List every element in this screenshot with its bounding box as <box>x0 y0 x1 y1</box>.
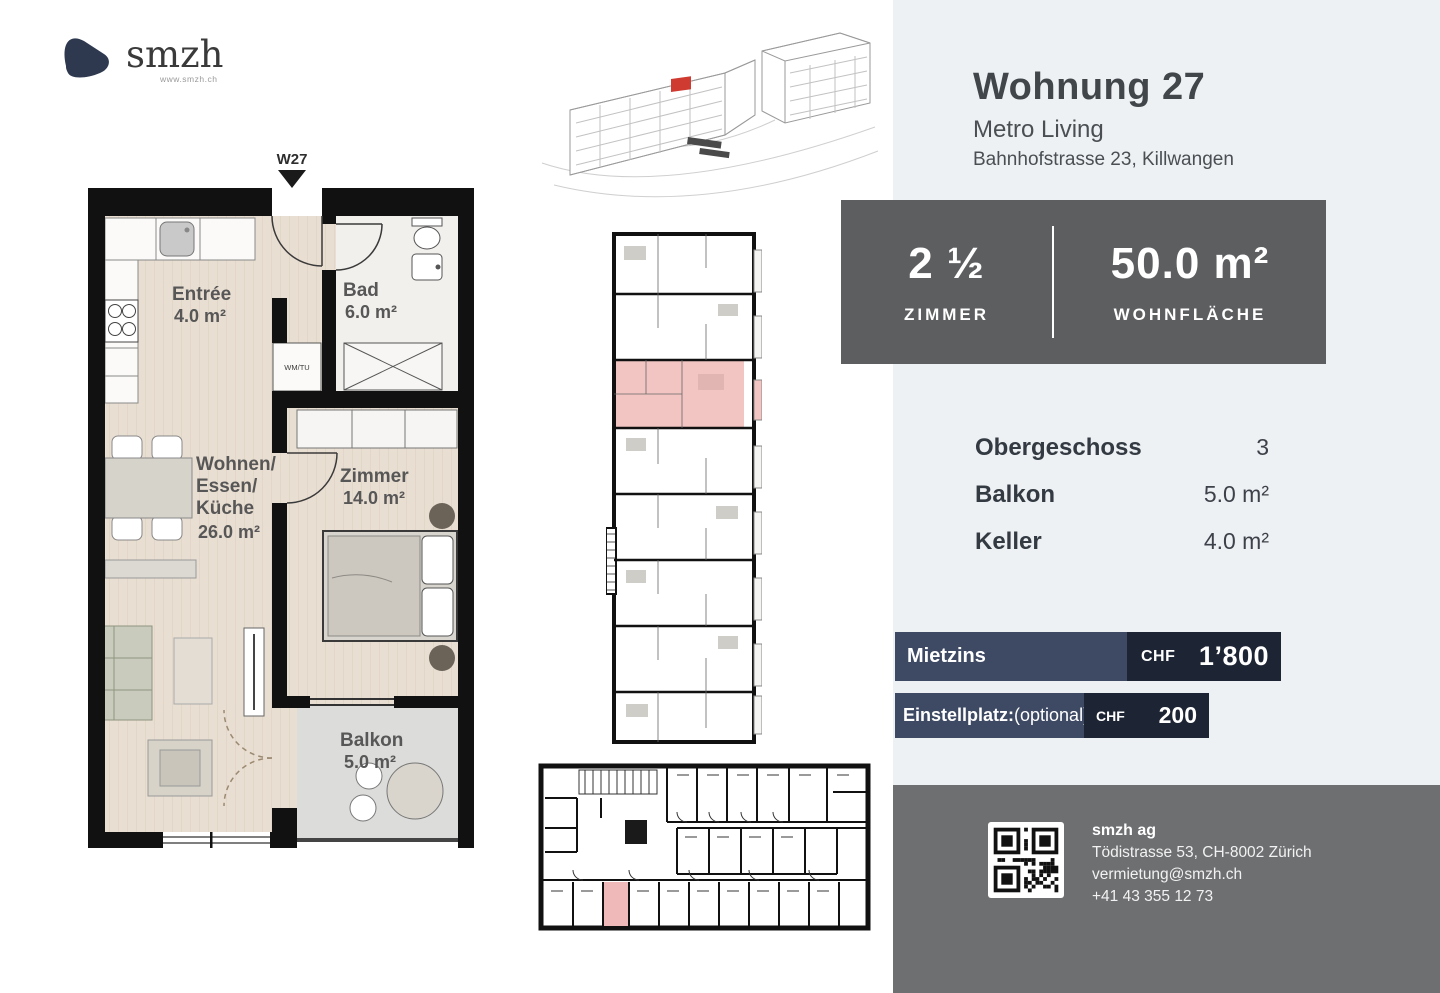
contact-block: smzh ag Tödistrasse 53, CH-8002 Zürich v… <box>1092 820 1312 908</box>
elevator-shaft <box>625 820 647 844</box>
bathroom-sink <box>412 254 442 280</box>
detail-row-cellar: Keller 4.0 m² <box>975 528 1269 556</box>
svg-text:14.0 m²: 14.0 m² <box>343 488 405 508</box>
apartment-factsheet: smzh www.smzh.ch <box>0 0 1440 993</box>
svg-text:Küche: Küche <box>196 498 254 519</box>
unit-marker: W27 <box>277 151 308 188</box>
rooms-value: 2 ½ <box>908 239 984 289</box>
detail-label: Keller <box>975 528 1042 556</box>
windows <box>163 832 270 848</box>
stove <box>105 300 138 342</box>
kitchen-sink <box>160 222 194 256</box>
parking-sketch <box>687 137 730 158</box>
area-label: WOHNFLÄCHE <box>1114 305 1267 325</box>
keyfact-rooms: 2 ½ ZIMMER <box>841 200 1052 364</box>
rent-currency: CHF <box>1141 648 1175 666</box>
building-right <box>762 33 870 123</box>
svg-text:Wohnen/: Wohnen/ <box>196 454 277 475</box>
detail-value: 3 <box>1256 434 1269 461</box>
basement-plan <box>537 762 872 932</box>
svg-text:6.0 m²: 6.0 m² <box>345 302 397 322</box>
site-overview-sketch <box>540 15 880 205</box>
washer-closet: WM/TU <box>273 343 321 391</box>
rooms-label: ZIMMER <box>904 305 989 325</box>
shower <box>344 343 442 390</box>
detail-row-balcony: Balkon 5.0 m² <box>975 481 1269 509</box>
highlighted-cellar <box>603 882 629 926</box>
tv-sideboard <box>244 628 264 716</box>
svg-text:5.0 m²: 5.0 m² <box>344 752 396 772</box>
logo-mark-icon <box>58 30 116 86</box>
rent-bar: Mietzins CHF 1’800 <box>895 632 1281 681</box>
bed <box>323 531 457 641</box>
logo-brand: smzh <box>126 36 223 73</box>
contact-phone: +41 43 355 12 73 <box>1092 886 1312 908</box>
detail-label: Balkon <box>975 481 1055 509</box>
page-title: Wohnung 27 <box>973 66 1413 109</box>
area-value: 50.0 m² <box>1111 239 1270 289</box>
detail-row-floor: Obergeschoss 3 <box>975 434 1269 462</box>
detail-list: Obergeschoss 3 Balkon 5.0 m² Keller 4.0 … <box>975 434 1269 575</box>
parking-label: Einstellplatz:(optional) <box>895 693 1084 738</box>
floor-overview-plan <box>606 228 762 748</box>
basement-stairs <box>579 770 657 794</box>
svg-text:Balkon: Balkon <box>340 730 403 751</box>
plant-stool <box>429 645 455 671</box>
parking-label-suffix: (optional) <box>1014 705 1089 726</box>
detail-value: 4.0 m² <box>1204 528 1269 555</box>
logo-website: www.smzh.ch <box>160 74 223 84</box>
entrance-arrow-icon <box>278 170 306 188</box>
project-address: Bahnhofstrasse 23, Killwangen <box>973 149 1413 171</box>
detail-label: Obergeschoss <box>975 434 1142 462</box>
project-name: Metro Living <box>973 116 1413 144</box>
logo: smzh www.smzh.ch <box>58 30 278 90</box>
svg-text:W27: W27 <box>277 151 308 168</box>
svg-text:26.0 m²: 26.0 m² <box>198 522 260 542</box>
apartment-floorplan: WM/TU <box>60 148 500 868</box>
keyfact-area: 50.0 m² WOHNFLÄCHE <box>1054 200 1326 364</box>
sideboard <box>105 560 196 578</box>
parking-amount: 200 <box>1159 702 1197 729</box>
coffee-table <box>174 638 212 704</box>
parking-bar: Einstellplatz:(optional) CHF 200 <box>895 693 1209 738</box>
unit-header: Wohnung 27 Metro Living Bahnhofstrasse 2… <box>973 66 1413 171</box>
svg-text:WM/TU: WM/TU <box>284 363 309 372</box>
svg-text:Zimmer: Zimmer <box>340 466 409 487</box>
qr-code <box>988 822 1064 898</box>
balcony-railing <box>297 838 458 842</box>
contact-company: smzh ag <box>1092 820 1312 842</box>
contact-address: Tödistrasse 53, CH-8002 Zürich <box>1092 842 1312 864</box>
rent-label: Mietzins <box>895 632 1127 681</box>
svg-text:Bad: Bad <box>343 280 379 301</box>
parking-label-main: Einstellplatz: <box>903 705 1014 726</box>
svg-text:Essen/: Essen/ <box>196 476 258 497</box>
contact-email: vermietung@smzh.ch <box>1092 864 1312 886</box>
svg-text:4.0 m²: 4.0 m² <box>174 306 226 326</box>
rent-amount: 1’800 <box>1199 641 1269 672</box>
toilet <box>412 218 442 249</box>
plant-stool <box>429 503 455 529</box>
parking-currency: CHF <box>1096 708 1125 724</box>
armchair <box>148 740 212 796</box>
keyfacts-box: 2 ½ ZIMMER 50.0 m² WOHNFLÄCHE <box>841 200 1326 364</box>
sofa <box>102 626 152 720</box>
detail-value: 5.0 m² <box>1204 481 1269 508</box>
svg-text:Entrée: Entrée <box>172 284 231 305</box>
wardrobe <box>297 410 457 448</box>
